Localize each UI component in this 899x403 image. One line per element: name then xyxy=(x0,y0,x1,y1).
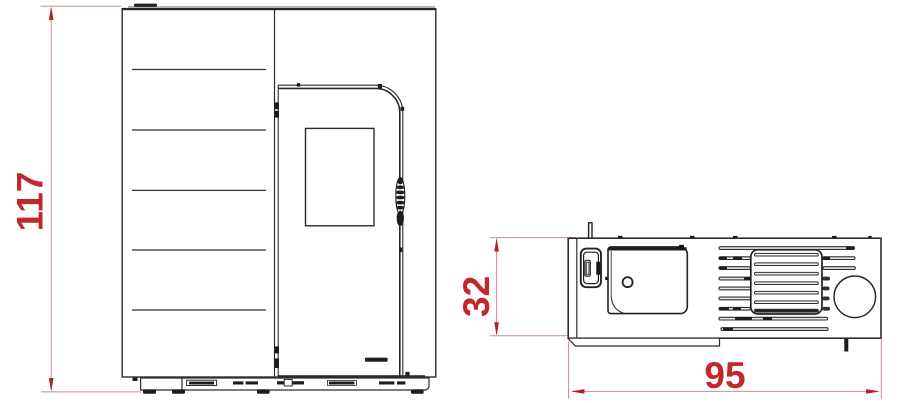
svg-text:32: 32 xyxy=(456,276,497,317)
svg-text:95: 95 xyxy=(704,355,745,396)
svg-text:117: 117 xyxy=(10,172,51,232)
